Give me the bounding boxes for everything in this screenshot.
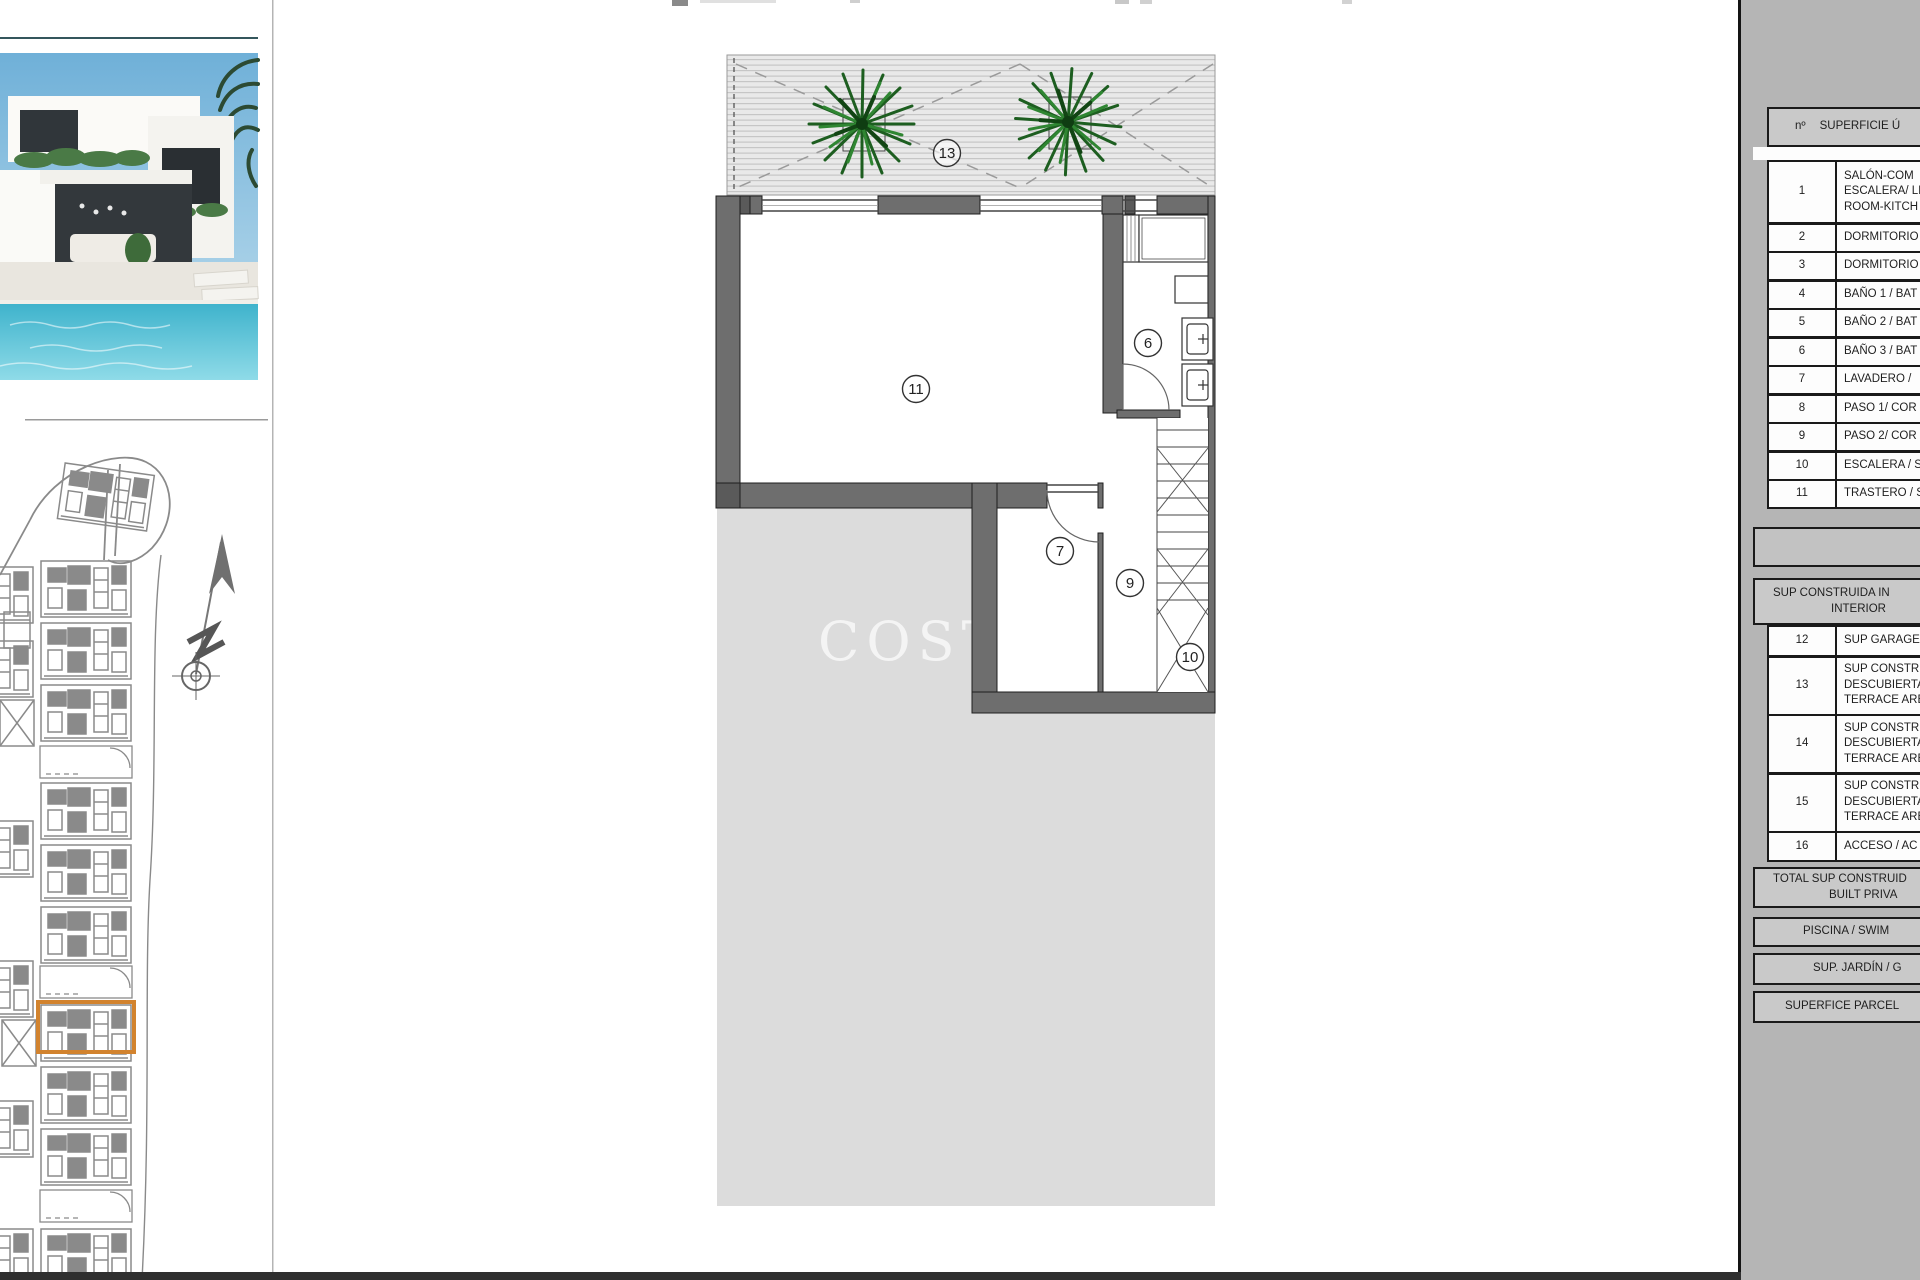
table-row: 16 ACCESO / AC [1767, 831, 1920, 862]
svg-text:10: 10 [1182, 649, 1199, 666]
pool-band: PISCINA / SWIM [1753, 917, 1920, 947]
table-spacer [1753, 527, 1920, 567]
sink-icon [1182, 318, 1213, 360]
col-surface-header: SUPERFICIE Ú [1820, 119, 1901, 135]
table-row: 13 SUP CONSTRU DESCUBIERTA TERRACE ARE [1767, 656, 1920, 716]
pool [0, 304, 258, 380]
table-header: nº SUPERFICIE Ú [1767, 107, 1920, 147]
svg-text:13: 13 [939, 145, 956, 162]
svg-text:7: 7 [1056, 543, 1064, 560]
label-stairs: 10 [1177, 644, 1204, 671]
svg-text:11: 11 [908, 381, 924, 398]
table-row: 5 BAÑO 2 / BAT [1767, 308, 1920, 338]
roof-terrace [727, 51, 1215, 195]
table-row: 11 TRASTERO / S [1767, 479, 1920, 509]
table-row: 1 SALÓN-COM ESCALERA/ LI ROOM-KITCH [1767, 160, 1920, 224]
table-row: 7 LAVADERO / [1767, 365, 1920, 395]
floor-plan: COSTA s [716, 51, 1215, 1206]
drawing-canvas: COSTA s [0, 0, 1920, 1280]
table-row: 2 DORMITORIO [1767, 223, 1920, 253]
table-row: 15 SUP CONSTRU DESCUBIERTA TERRACE ARE [1767, 773, 1920, 833]
sink-icon [1182, 364, 1213, 406]
svg-text:6: 6 [1144, 335, 1152, 352]
sidebar-vertical-divider [272, 0, 274, 1272]
col-number-header: nº [1795, 119, 1806, 135]
photo-top-edge [0, 37, 258, 39]
label-terrace: 13 [934, 140, 961, 167]
table-row: 6 BAÑO 3 / BAT [1767, 337, 1920, 367]
north-arrow-icon [172, 534, 235, 700]
floorplan-document-page: { "watermark": { "main": "COSTA", "tail"… [0, 0, 1920, 1280]
site-plan [0, 458, 170, 1280]
table-row: 3 DORMITORIO [1767, 251, 1920, 281]
svg-text:9: 9 [1126, 575, 1134, 592]
label-hall: 9 [1117, 570, 1144, 597]
table-row: 10 ESCALERA / S [1767, 451, 1920, 481]
label-laundry: 7 [1047, 538, 1074, 565]
page-bottom-edge [0, 1272, 1920, 1280]
parcel-band: SUPERFICE PARCEL [1753, 991, 1920, 1023]
villa-photo [0, 37, 258, 380]
table-row: 9 PASO 2/ COR [1767, 422, 1920, 452]
garden-band: SUP. JARDÍN / G [1753, 953, 1920, 985]
table-gap [1753, 147, 1920, 160]
sidebar-horizontal-divider [25, 419, 268, 421]
table-row: 4 BAÑO 1 / BAT [1767, 280, 1920, 310]
built-surface-header: SUP CONSTRUIDA IN INTERIOR [1753, 578, 1920, 625]
table-row: 8 PASO 1/ COR [1767, 394, 1920, 424]
label-storage: 11 [903, 376, 930, 403]
total-built-band: TOTAL SUP CONSTRUID BUILT PRIVA [1753, 867, 1920, 908]
table-row: 12 SUP GARAGE, [1767, 625, 1920, 657]
table-row: 14 SUP CONSTRU DESCUBIERTA TERRACE ARE [1767, 714, 1920, 774]
label-bath: 6 [1135, 330, 1162, 357]
surface-table-panel: nº SUPERFICIE Ú 1 SALÓN-COM ESCALERA/ LI… [1741, 0, 1920, 1280]
page-crop-marks [672, 0, 1352, 6]
